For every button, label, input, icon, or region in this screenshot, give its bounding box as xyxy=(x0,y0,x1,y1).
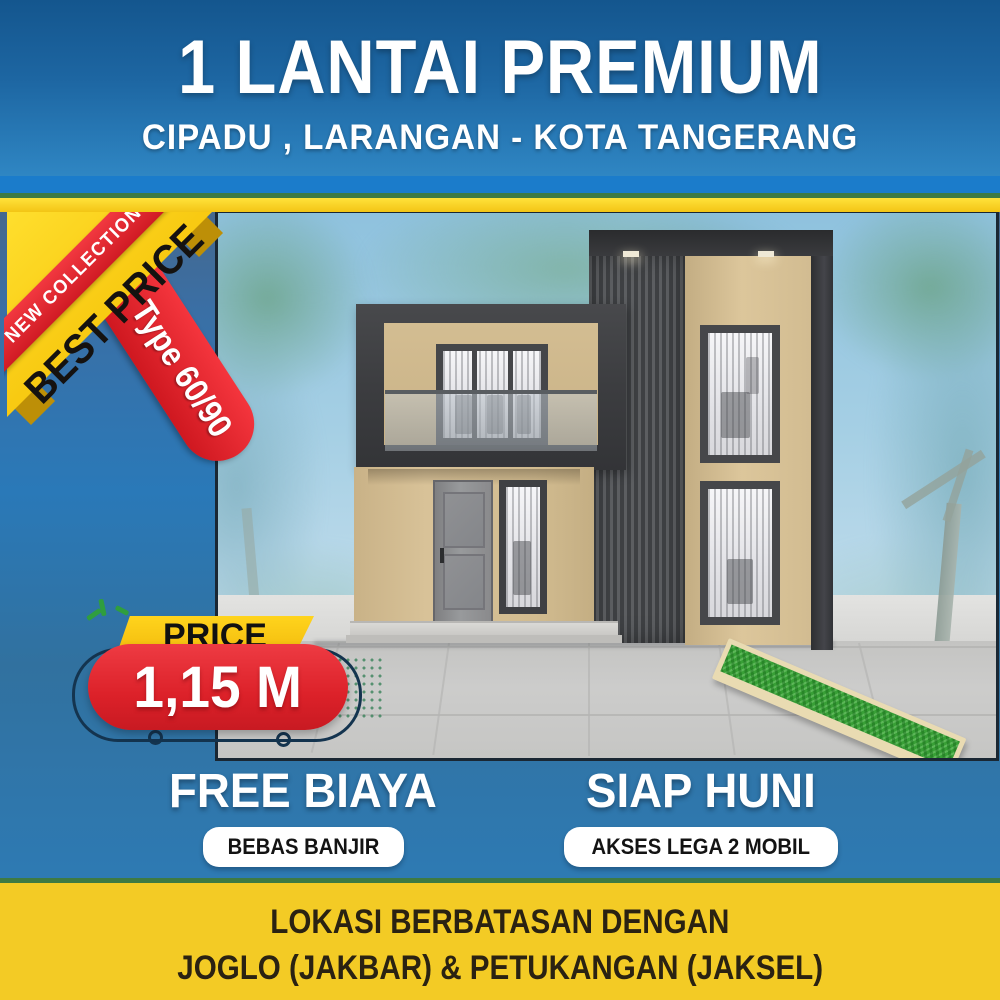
window-glass xyxy=(506,487,540,607)
feature-free-biaya: FREE BIAYA BEBAS BANJIR xyxy=(162,764,444,867)
footer-line-1-text: LOKASI BERBATASAN DENGAN xyxy=(270,899,729,945)
window-glass xyxy=(708,333,772,455)
glass-reflection xyxy=(727,559,753,604)
price-value-text: 1,15 M xyxy=(134,654,302,721)
feature-title: FREE BIAYA xyxy=(162,764,444,819)
sparkle-icon xyxy=(115,605,130,616)
divider-blue-strip xyxy=(0,176,1000,193)
downlight-icon xyxy=(623,251,639,257)
balcony-glass-railing xyxy=(385,390,597,451)
price-value-pill: 1,15 M xyxy=(88,644,348,730)
feature-title-text: FREE BIAYA xyxy=(169,764,437,819)
price-badge: PRICE 1,15 M xyxy=(70,596,400,761)
door-handle-icon xyxy=(440,548,444,563)
tile-joint-v xyxy=(588,643,590,756)
glass-reflection xyxy=(746,357,759,394)
footer-line-1: LOKASI BERBATASAN DENGAN xyxy=(0,899,1000,945)
front-door xyxy=(433,480,493,626)
feature-badge: AKSES LEGA 2 MOBIL xyxy=(564,827,838,867)
footer-banner: LOKASI BERBATASAN DENGAN JOGLO (JAKBAR) … xyxy=(0,883,1000,1000)
tower-window-upper xyxy=(700,325,780,463)
outline-end-dot xyxy=(148,730,163,745)
feature-siap-huni: SIAP HUNI AKSES LEGA 2 MOBIL xyxy=(564,764,838,867)
door-panel xyxy=(443,554,485,610)
flyer-poster: 1 LANTAI PREMIUM CIPADU , LARANGAN - KOT… xyxy=(0,0,1000,1000)
tower-edge-column xyxy=(811,230,833,650)
footer-line-2: JOGLO (JAKBAR) & PETUKANGAN (JAKSEL) xyxy=(0,945,1000,991)
glass-reflection xyxy=(721,392,750,438)
feature-badge-text: BEBAS BANJIR xyxy=(227,834,379,860)
corner-badge: Type 60/90 BEST PRICE NEW COLLECTION xyxy=(4,212,292,506)
entry-side-window xyxy=(499,480,547,614)
tower-window-lower xyxy=(700,481,780,625)
door-panel xyxy=(443,492,485,548)
page-title: 1 LANTAI PREMIUM xyxy=(0,24,1000,111)
footer-line-2-text: JOGLO (JAKBAR) & PETUKANGAN (JAKSEL) xyxy=(177,945,823,991)
glass-reflection xyxy=(513,541,532,595)
feature-badge-text: AKSES LEGA 2 MOBIL xyxy=(592,834,811,860)
feature-title-text: SIAP HUNI xyxy=(586,764,816,819)
page-subtitle: CIPADU , LARANGAN - KOTA TANGERANG xyxy=(0,118,1000,158)
page-title-text: 1 LANTAI PREMIUM xyxy=(178,24,822,111)
sparkle-icon xyxy=(98,599,106,617)
feature-title: SIAP HUNI xyxy=(564,764,838,819)
feature-badge: BEBAS BANJIR xyxy=(203,827,404,867)
window-glass xyxy=(708,489,772,617)
page-subtitle-text: CIPADU , LARANGAN - KOTA TANGERANG xyxy=(142,118,858,158)
features-row: FREE BIAYA BEBAS BANJIR SIAP HUNI AKSES … xyxy=(0,764,1000,867)
outline-end-dot xyxy=(276,732,291,747)
downlight-icon xyxy=(758,251,774,257)
header-banner: 1 LANTAI PREMIUM CIPADU , LARANGAN - KOT… xyxy=(0,0,1000,176)
content-area: Type 60/90 BEST PRICE NEW COLLECTION PRI… xyxy=(0,212,1000,878)
divider-yellow-strip xyxy=(0,198,1000,212)
